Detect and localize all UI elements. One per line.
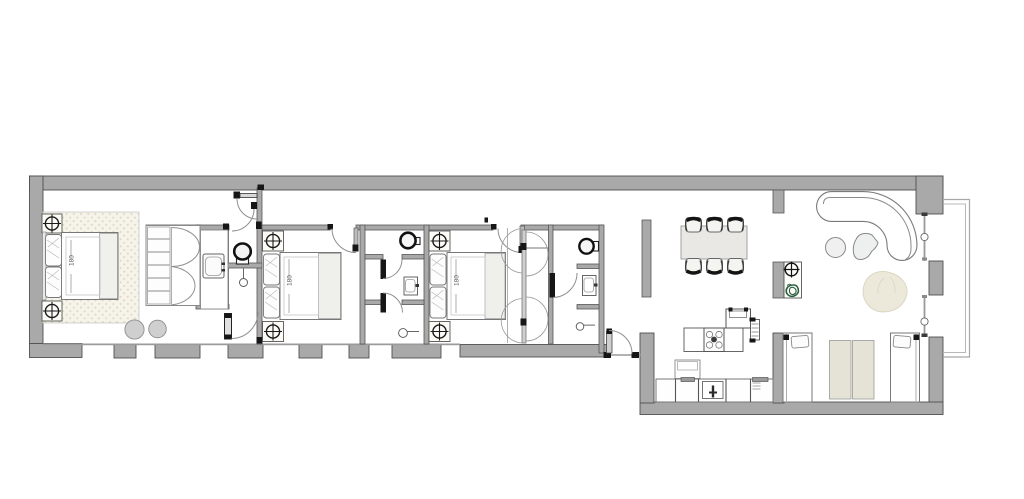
svg-text:180: 180 [454,275,461,286]
svg-text:180: 180 [69,255,76,266]
svg-text:180: 180 [287,275,294,286]
